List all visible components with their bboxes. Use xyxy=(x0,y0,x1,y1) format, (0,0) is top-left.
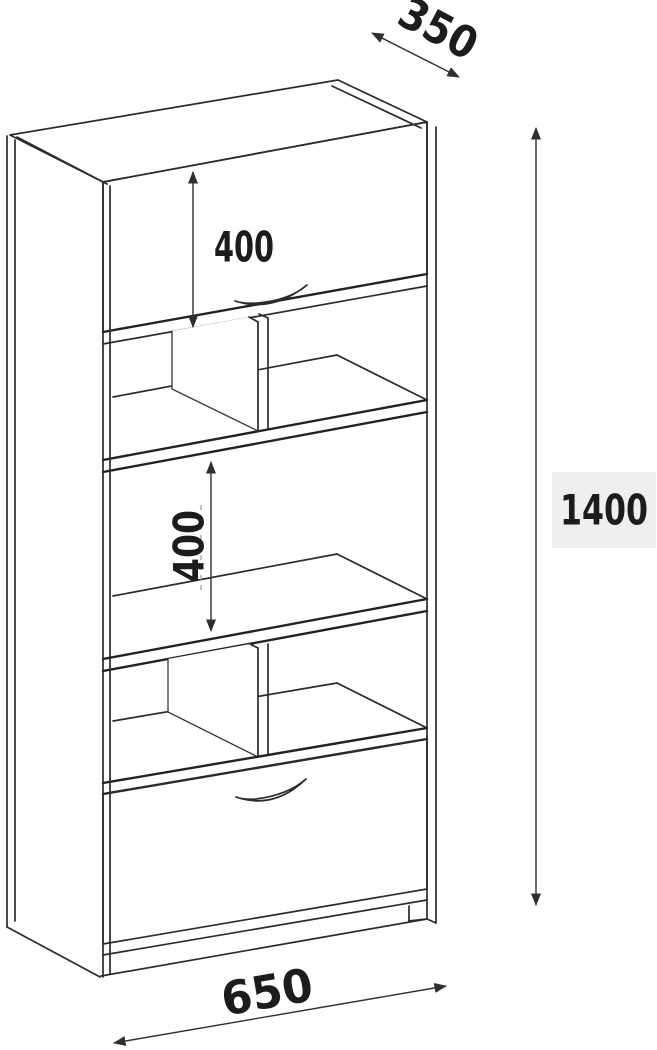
top-door-handle xyxy=(235,285,307,305)
cabinet-left-side-panel xyxy=(7,136,100,977)
dimension-depth: 350 xyxy=(372,0,486,77)
cabinet-top-panel xyxy=(10,80,427,184)
depth-label: 350 xyxy=(390,0,486,71)
dimension-total-height: 1400 xyxy=(536,128,656,905)
width-label: 650 xyxy=(217,957,317,1026)
middle-section-height-label: 400 xyxy=(165,510,214,582)
total-height-label: 1400 xyxy=(560,486,648,535)
top-door-height-label: 400 xyxy=(214,223,274,272)
cabinet-drawing: 350 400 400 1400 650 xyxy=(0,0,657,1050)
dimension-width: 650 xyxy=(114,957,446,1043)
middle-shelf xyxy=(103,554,427,671)
dimension-diagram: 350 400 400 1400 650 xyxy=(0,0,657,1050)
upper-cubby-section xyxy=(103,314,427,472)
bottom-drawer-handle xyxy=(236,779,306,801)
cabinet-body xyxy=(7,80,436,977)
